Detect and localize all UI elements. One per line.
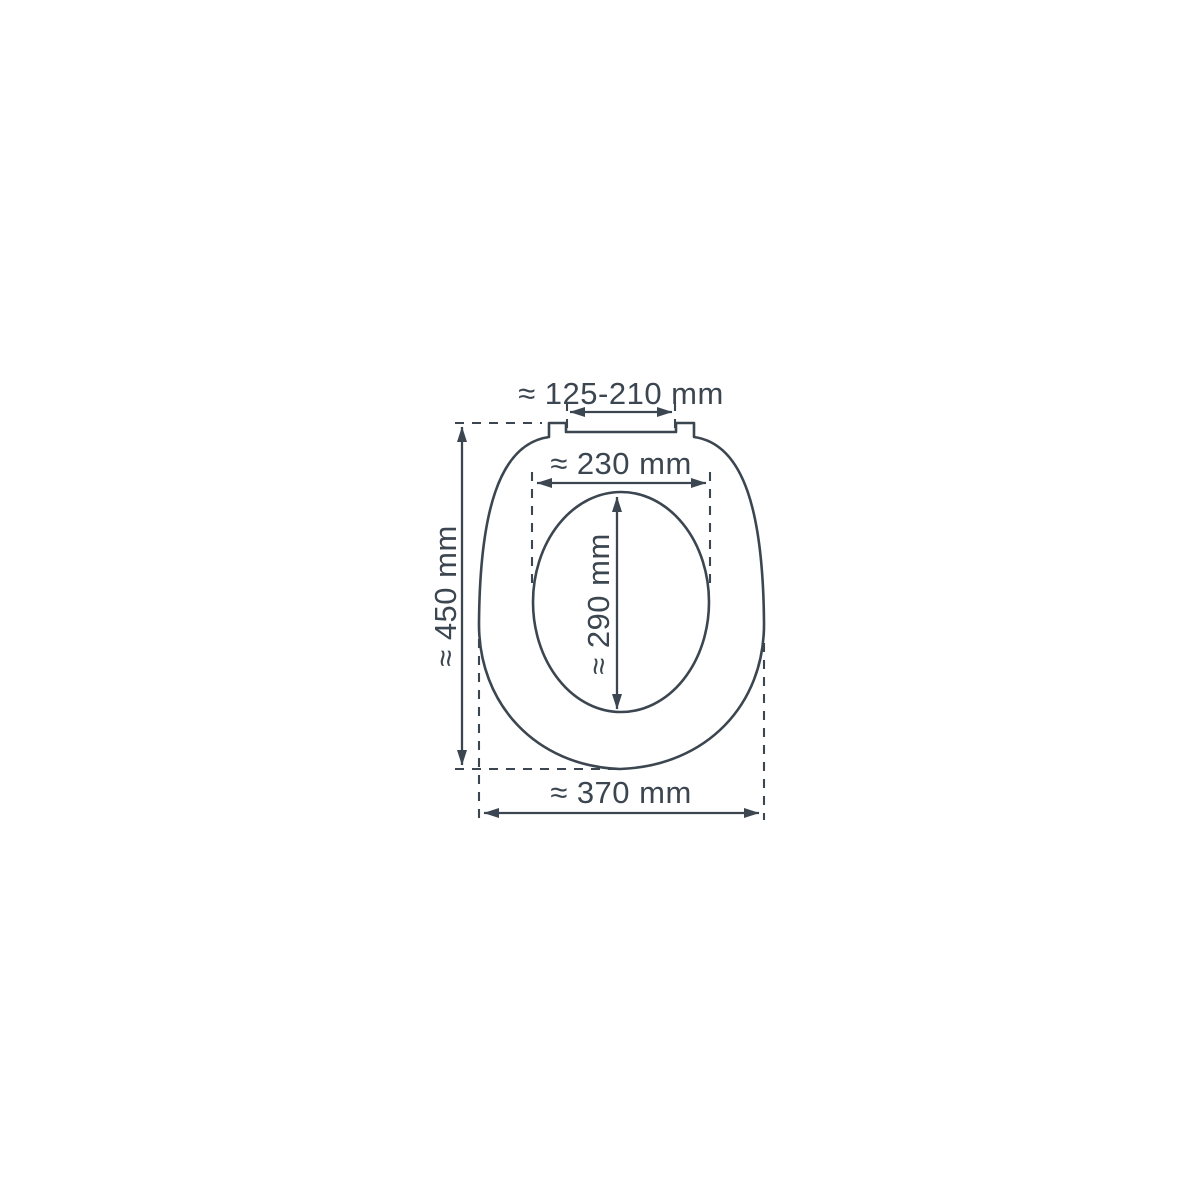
seat-opening-outline — [533, 492, 709, 712]
dim-opening-depth: ≈ 290 mm — [581, 497, 617, 709]
dim-opening-width: ≈ 230 mm — [532, 446, 710, 590]
opening-width-label: ≈ 230 mm — [550, 446, 692, 481]
dimension-diagram-page: ≈ 125-210 mm ≈ 230 mm ≈ 290 mm ≈ 450 mm … — [0, 0, 1200, 1200]
dim-overall-width: ≈ 370 mm — [479, 622, 764, 820]
hinge-width-label: ≈ 125-210 mm — [518, 376, 724, 411]
overall-depth-label: ≈ 450 mm — [428, 525, 463, 667]
toilet-seat-dimension-diagram: ≈ 125-210 mm ≈ 230 mm ≈ 290 mm ≈ 450 mm … — [0, 0, 1200, 1200]
overall-width-label: ≈ 370 mm — [550, 775, 692, 810]
opening-depth-label: ≈ 290 mm — [581, 533, 616, 675]
